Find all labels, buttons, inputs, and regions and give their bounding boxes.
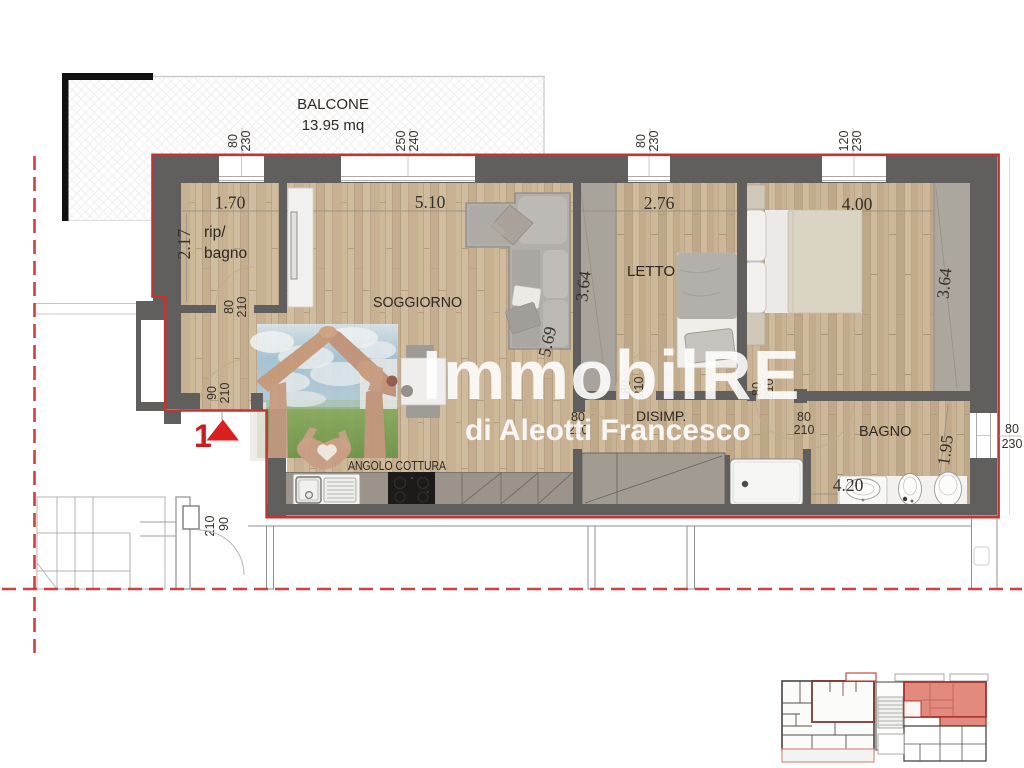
svg-text:bagno: bagno: [204, 245, 247, 262]
svg-text:ImmobilRE: ImmobilRE: [422, 336, 801, 414]
svg-text:3.64: 3.64: [932, 267, 955, 300]
svg-text:1.70: 1.70: [215, 193, 246, 213]
svg-text:13.95 mq: 13.95 mq: [302, 117, 365, 134]
svg-text:ANGOLO COTTURA: ANGOLO COTTURA: [348, 459, 447, 473]
svg-text:210: 210: [235, 297, 249, 318]
svg-text:2.76: 2.76: [644, 193, 675, 213]
svg-text:BALCONE: BALCONE: [297, 96, 369, 113]
svg-text:90: 90: [205, 386, 219, 400]
svg-text:240: 240: [407, 131, 421, 152]
svg-text:120: 120: [837, 131, 851, 152]
svg-text:80: 80: [226, 134, 240, 148]
svg-text:SOGGIORNO: SOGGIORNO: [373, 295, 462, 311]
svg-text:2.17: 2.17: [174, 228, 194, 259]
svg-text:1.95: 1.95: [933, 433, 957, 466]
svg-text:1: 1: [194, 418, 212, 454]
svg-text:210: 210: [203, 516, 217, 537]
svg-text:210: 210: [794, 423, 815, 437]
svg-text:4.20: 4.20: [833, 475, 864, 495]
svg-text:rip/: rip/: [204, 224, 226, 241]
svg-text:5.10: 5.10: [415, 192, 446, 212]
svg-text:230: 230: [239, 131, 253, 152]
svg-text:BAGNO: BAGNO: [859, 424, 911, 440]
svg-text:80: 80: [222, 300, 236, 314]
svg-text:230: 230: [850, 131, 864, 152]
svg-text:250: 250: [394, 131, 408, 152]
svg-text:80: 80: [634, 134, 648, 148]
svg-text:80: 80: [1005, 422, 1019, 436]
svg-text:90: 90: [217, 517, 231, 531]
svg-text:230: 230: [647, 131, 661, 152]
svg-text:3.64: 3.64: [571, 270, 595, 303]
svg-text:210: 210: [218, 383, 232, 404]
svg-text:di Aleotti Francesco: di Aleotti Francesco: [465, 414, 751, 447]
svg-text:4.00: 4.00: [842, 194, 873, 214]
svg-text:230: 230: [1002, 437, 1023, 451]
svg-text:LETTO: LETTO: [627, 263, 675, 280]
